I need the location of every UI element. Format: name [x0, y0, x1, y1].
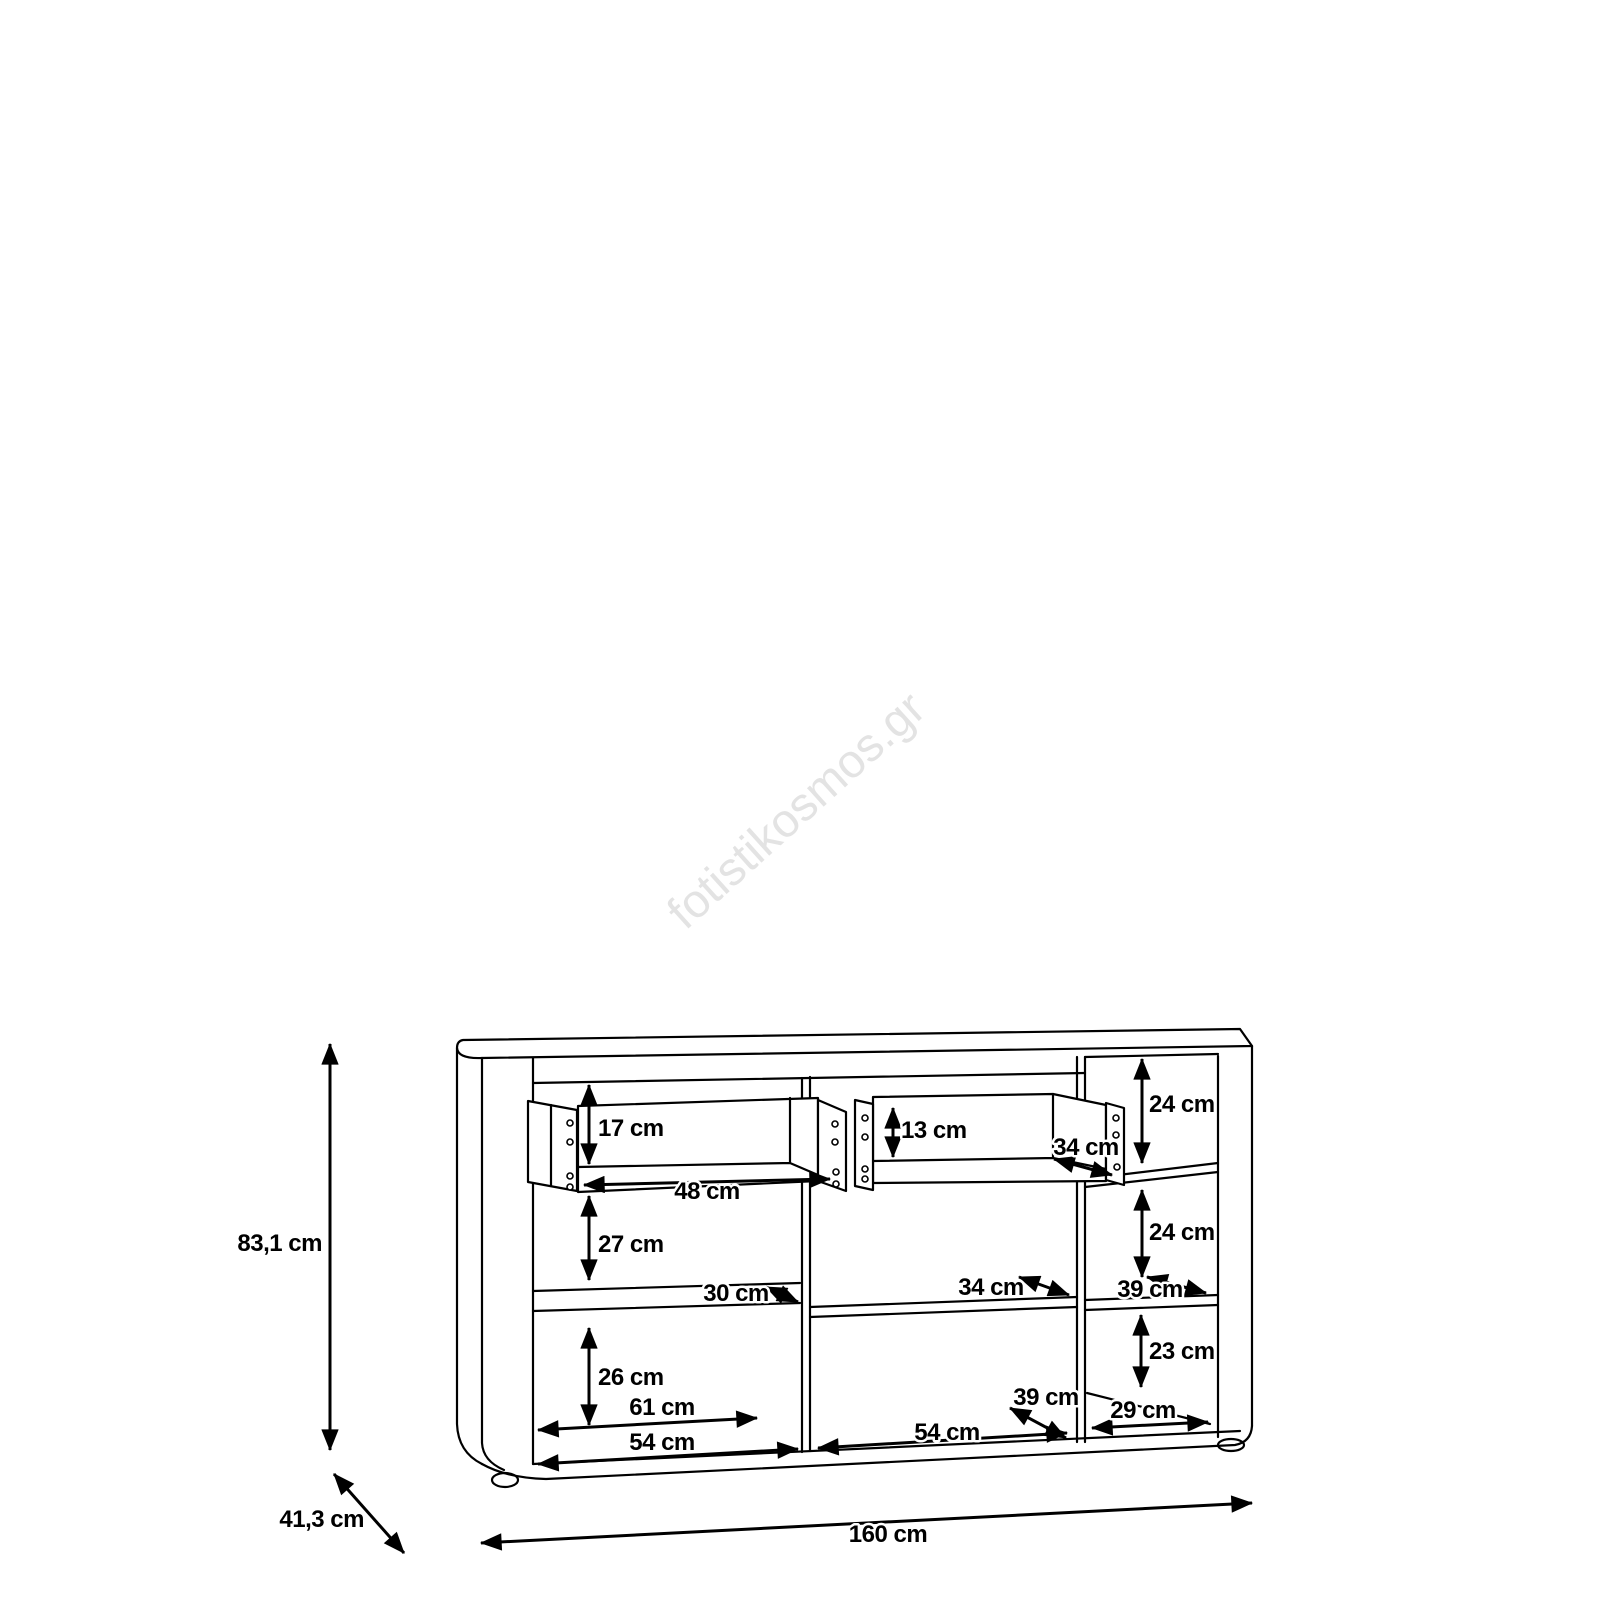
drawer-right-side-panel — [855, 1100, 873, 1190]
drawer-left-front-panel — [528, 1101, 577, 1191]
dim-label-right-floor-width: 29 cm — [1110, 1397, 1176, 1424]
dim-right-floor-width: 29 cm — [1092, 1397, 1208, 1428]
dim-left-width-inner: 61 cm — [538, 1394, 757, 1430]
dim-label-right-mid-gap: 24 cm — [1149, 1219, 1215, 1246]
dim-overall-depth: 41,3 cm — [279, 1474, 404, 1553]
dim-label-left-bottom-gap: 26 cm — [598, 1364, 664, 1391]
dim-left-top-gap: 27 cm — [589, 1196, 664, 1280]
dim-label-left-shelf-depth: 30 cm — [703, 1280, 769, 1307]
dim-label-right-shelf-depth: 39 cm — [1117, 1276, 1183, 1303]
dim-label-drawer-left-height: 17 cm — [598, 1115, 664, 1142]
dim-center-section-width: 54 cm — [818, 1419, 1067, 1448]
cabinet-left-panel-inner — [482, 1058, 504, 1470]
dim-overall-height: 83,1 cm — [237, 1044, 330, 1450]
dim-right-top-gap: 24 cm — [1142, 1059, 1215, 1163]
drawer-left-end-panel — [818, 1100, 846, 1191]
dim-label-drawer-right-height: 13 cm — [901, 1117, 967, 1144]
dim-overall-width: 160 cm — [481, 1503, 1252, 1548]
dim-label-overall-height: 83,1 cm — [237, 1230, 322, 1257]
watermark-text: fotistikosmos.gr — [657, 681, 935, 939]
dim-label-center-shelf-depth: 34 cm — [958, 1274, 1024, 1301]
dim-label-drawer-right-depth: 34 cm — [1053, 1134, 1119, 1161]
dim-center-floor-depth: 39 cm — [1010, 1384, 1079, 1438]
dim-right-shelf-depth: 39 cm — [1117, 1276, 1206, 1303]
cabinet-right-ceiling — [1085, 1054, 1218, 1057]
dim-label-left-top-gap: 27 cm — [598, 1231, 664, 1258]
dim-label-left-width-inner: 61 cm — [629, 1394, 695, 1421]
diagram-svg: fotistikosmos.gr — [0, 0, 1600, 1600]
dim-label-right-top-gap: 24 cm — [1149, 1091, 1215, 1118]
dim-right-mid-gap: 24 cm — [1142, 1190, 1215, 1277]
cabinet-skirt-bottom — [482, 1426, 1252, 1479]
dim-label-overall-depth: 41,3 cm — [279, 1506, 364, 1533]
dim-label-drawer-left-width: 48 cm — [674, 1178, 740, 1205]
cabinet-left-panel-outer — [457, 1048, 482, 1464]
dim-right-bottom-gap: 23 cm — [1141, 1315, 1215, 1387]
dim-label-left-section-width: 54 cm — [629, 1429, 695, 1456]
dim-label-right-bottom-gap: 23 cm — [1149, 1338, 1215, 1365]
furniture-dimension-diagram: fotistikosmos.gr — [0, 0, 1600, 1600]
cabinet-top-panel — [457, 1029, 1252, 1058]
dim-label-center-floor-depth: 39 cm — [1013, 1384, 1079, 1411]
dim-label-center-section-width: 54 cm — [914, 1419, 980, 1446]
dim-label-overall-width: 160 cm — [849, 1521, 927, 1548]
shelf-center-middle — [810, 1297, 1077, 1317]
